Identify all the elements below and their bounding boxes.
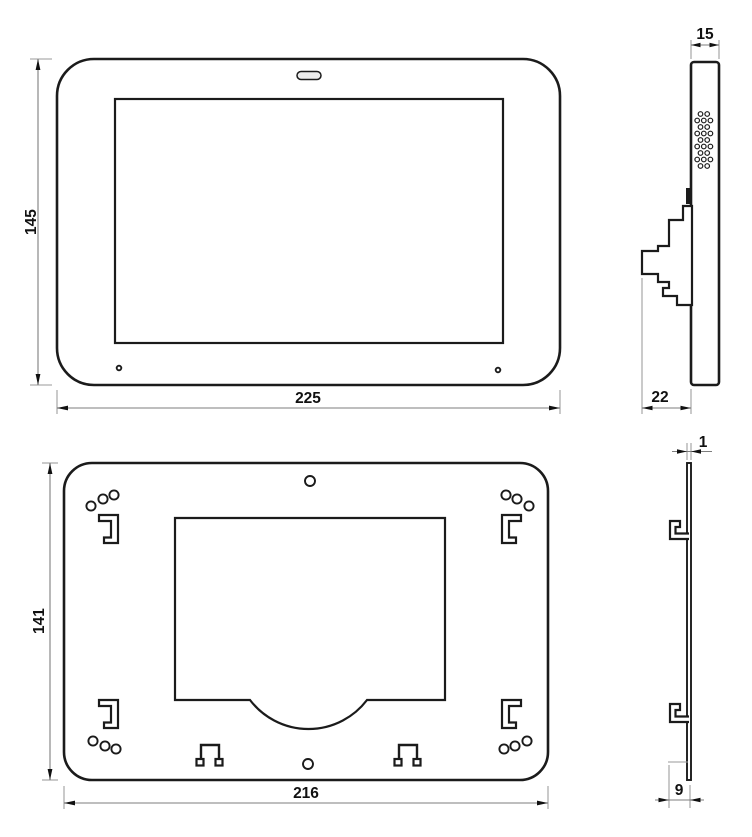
technical-drawing: 145 225 15 — [0, 0, 752, 837]
arrow-right — [549, 406, 560, 411]
arrow-left — [642, 406, 653, 411]
snap-tab-foot — [395, 759, 402, 766]
arrow-right — [537, 801, 548, 806]
plate-central-cutout — [175, 518, 445, 729]
speaker-hole — [702, 144, 707, 149]
arrow-left — [57, 406, 68, 411]
arrow-up — [48, 463, 53, 474]
arrow-left — [691, 43, 701, 47]
dim-side-thickness: 15 — [691, 26, 719, 59]
technical-drawing-page: 145 225 15 — [0, 0, 752, 837]
dim-profile-thickness: 1 — [672, 434, 712, 460]
dim-label-plate-width: 216 — [293, 785, 319, 802]
arrow-right — [710, 43, 720, 47]
dim-front-height: 145 — [23, 59, 52, 385]
mounting-hole — [510, 741, 519, 750]
speaker-hole — [698, 151, 703, 156]
front-outline — [57, 59, 560, 385]
arrow-left — [690, 798, 701, 803]
side-view: 15 22 — [642, 26, 719, 414]
dim-label-profile-thickness: 1 — [699, 434, 708, 451]
speaker-hole — [708, 131, 713, 136]
arrow-right — [659, 798, 670, 803]
mounting-hole — [499, 744, 508, 753]
speaker-hole — [705, 125, 710, 130]
speaker-hole — [695, 144, 700, 149]
dim-label-profile-hook-depth: 9 — [675, 782, 684, 799]
front-indicator-hole-right — [496, 368, 501, 373]
snap-tab-foot — [216, 759, 223, 766]
speaker-hole — [708, 157, 713, 162]
snap-tab-foot — [414, 759, 421, 766]
plate-profile-view: 1 9 — [655, 434, 712, 808]
dim-label-front-height: 145 — [23, 209, 40, 235]
speaker-hole — [698, 125, 703, 130]
arrow-left — [64, 801, 75, 806]
speaker-hole — [708, 118, 713, 123]
screw-hole-top — [305, 476, 315, 486]
mounting-hole — [522, 736, 531, 745]
dim-label-plate-height: 141 — [31, 608, 48, 634]
mounting-hole — [109, 490, 118, 499]
side-mount-bracket — [642, 206, 692, 305]
speaker-hole — [705, 138, 710, 143]
side-panel-outline — [691, 62, 719, 385]
speaker-hole — [708, 144, 713, 149]
plate-profile-outline — [687, 463, 691, 780]
arrow-down — [36, 374, 41, 385]
dim-plate-height: 141 — [31, 463, 58, 780]
mounting-hole — [512, 494, 521, 503]
arrow-right — [677, 449, 687, 454]
speaker-hole — [698, 138, 703, 143]
speaker-slot — [297, 72, 321, 80]
speaker-hole — [705, 151, 710, 156]
mounting-hole — [111, 744, 120, 753]
speaker-hole — [698, 164, 703, 169]
front-view: 145 225 — [23, 59, 560, 414]
speaker-hole — [695, 157, 700, 162]
arrow-down — [48, 769, 53, 780]
snap-tab-foot — [197, 759, 204, 766]
speaker-hole — [702, 157, 707, 162]
dim-label-front-width: 225 — [295, 390, 321, 407]
mounting-plate-view: 141 216 — [31, 463, 548, 809]
speaker-hole — [695, 131, 700, 136]
mounting-hole — [88, 736, 97, 745]
speaker-hole — [705, 112, 710, 117]
speaker-hole — [702, 131, 707, 136]
mounting-hole — [100, 741, 109, 750]
speaker-hole — [702, 118, 707, 123]
mounting-hole — [86, 501, 95, 510]
dim-plate-width: 216 — [64, 785, 548, 809]
front-indicator-hole-left — [117, 366, 122, 371]
dim-label-side-thickness: 15 — [696, 26, 714, 43]
mounting-hole — [524, 501, 533, 510]
screw-hole-bottom — [303, 759, 313, 769]
arrow-up — [36, 59, 41, 70]
dim-profile-hook-depth: 9 — [655, 762, 704, 808]
speaker-hole — [705, 164, 710, 169]
mounting-hole — [98, 494, 107, 503]
speaker-hole — [698, 112, 703, 117]
mounting-hole — [501, 490, 510, 499]
side-latch-tab — [686, 188, 692, 204]
dim-label-side-mount-depth: 22 — [651, 389, 668, 406]
arrow-right — [681, 406, 692, 411]
speaker-hole — [695, 118, 700, 123]
dim-front-width: 225 — [57, 390, 560, 414]
